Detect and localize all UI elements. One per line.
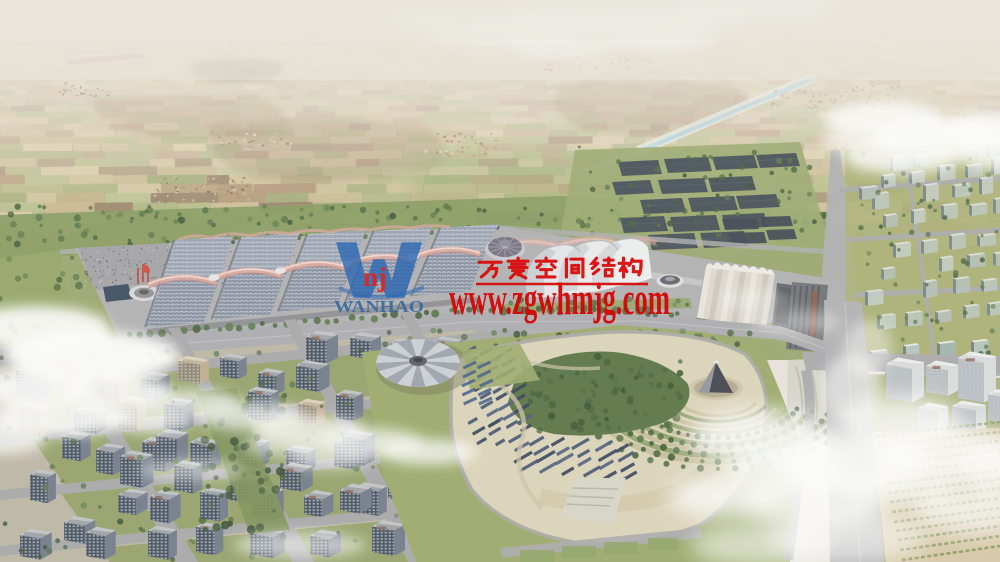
svg-text:www.zgwhmjg.com: www.zgwhmjg.com bbox=[449, 273, 670, 324]
svg-text:nj: nj bbox=[363, 262, 387, 292]
svg-text:WANHAO: WANHAO bbox=[334, 297, 424, 316]
